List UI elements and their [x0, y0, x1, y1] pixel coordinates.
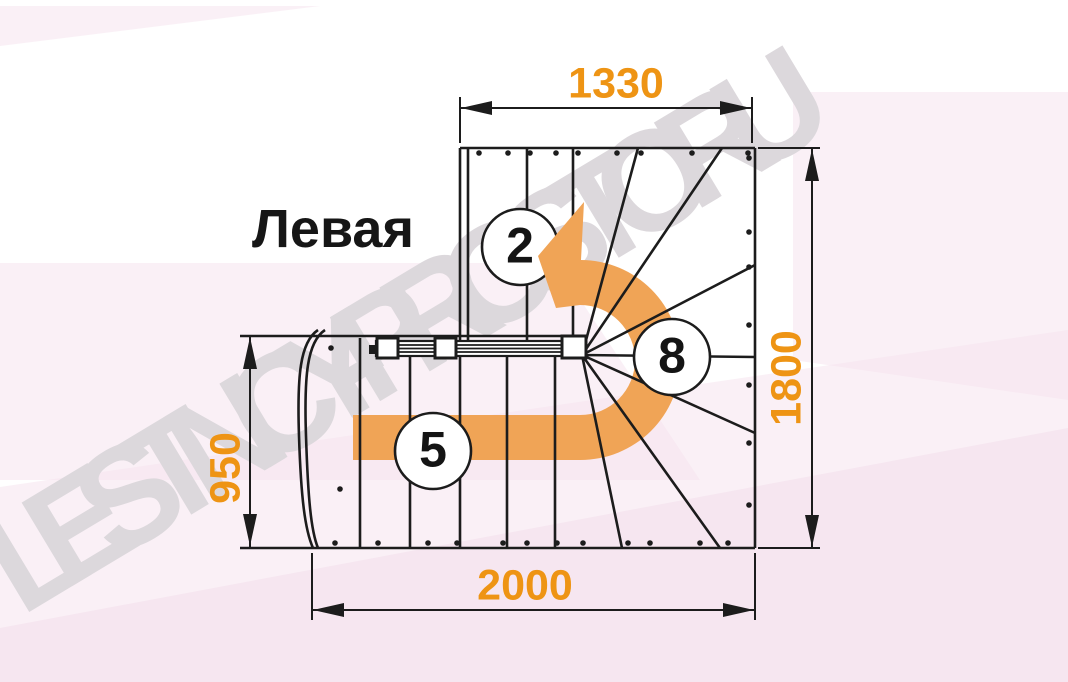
dimension-label-bottom: 2000	[477, 562, 573, 611]
rail-post	[435, 338, 456, 358]
step-count-top: 2	[506, 217, 534, 275]
dimension-label-top: 1330	[568, 60, 664, 109]
dimension-label-left: 950	[202, 432, 251, 504]
step-count-bottom: 5	[419, 421, 447, 479]
handrail	[369, 336, 586, 358]
newel-post	[562, 336, 586, 358]
rail-post	[377, 338, 398, 358]
stair-plan-drawing: LESTNICY-PROSTO.RU	[0, 0, 1068, 682]
step-count-winder: 8	[658, 327, 686, 385]
rail-end-cap	[369, 345, 377, 354]
plan-title: Левая	[252, 198, 414, 260]
dimension-label-right: 1800	[763, 330, 812, 426]
